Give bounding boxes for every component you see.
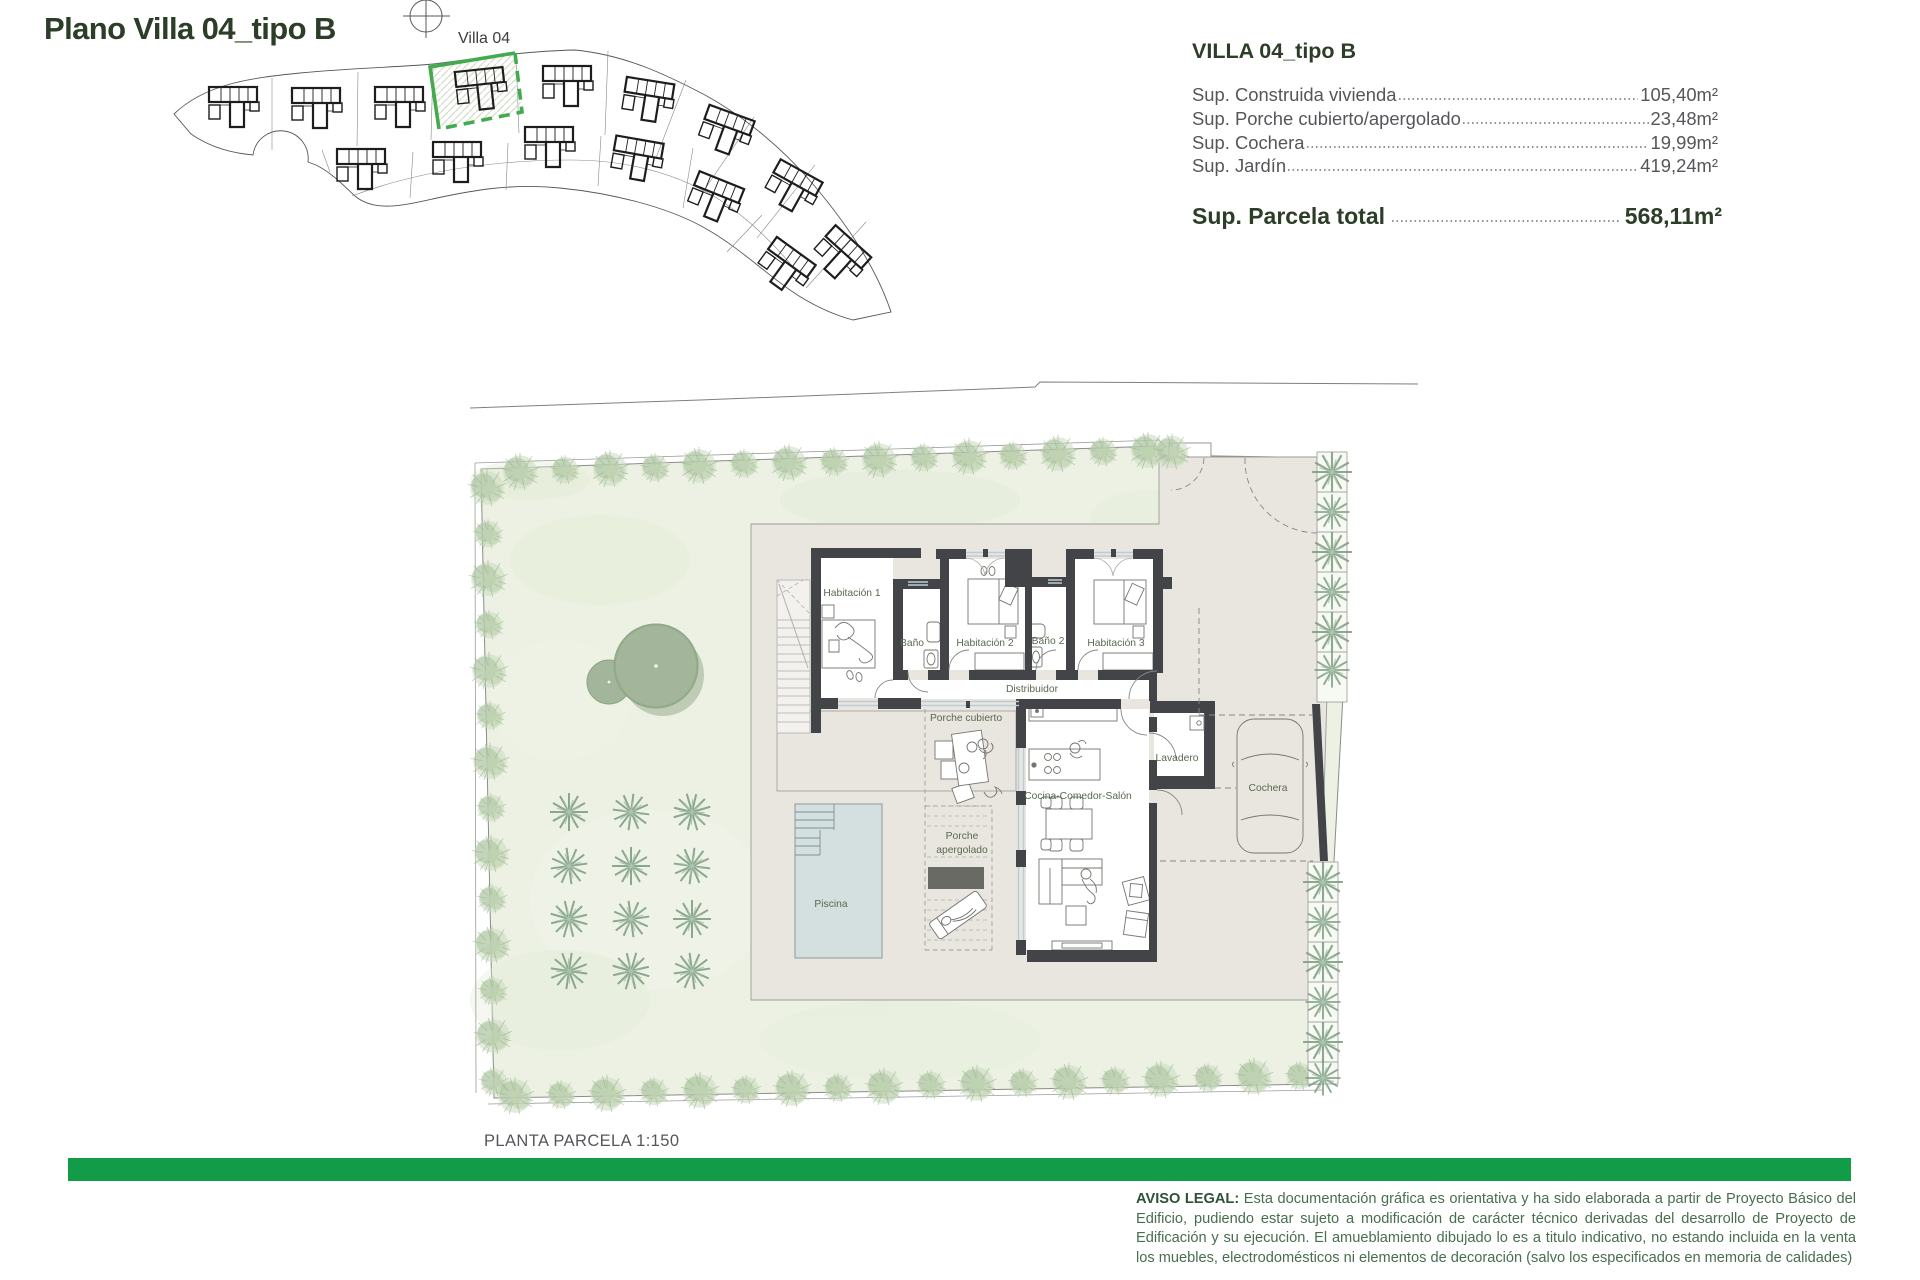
- svg-text:Sup. Construida vivienda: Sup. Construida vivienda: [1192, 84, 1397, 105]
- svg-text:Porche cubierto: Porche cubierto: [930, 713, 1002, 724]
- svg-text:Porche: Porche: [946, 831, 979, 842]
- svg-text:Sup. Jardín: Sup. Jardín: [1192, 155, 1286, 176]
- svg-text:568,11m²: 568,11m²: [1625, 203, 1723, 229]
- svg-text:VILLA 04_tipo B: VILLA 04_tipo B: [1192, 39, 1356, 63]
- svg-text:23,48m²: 23,48m²: [1651, 108, 1718, 129]
- svg-text:Piscina: Piscina: [814, 899, 847, 910]
- svg-text:Lavadero: Lavadero: [1156, 753, 1199, 764]
- svg-text:Cochera: Cochera: [1249, 783, 1288, 794]
- svg-text:Sup. Cochera: Sup. Cochera: [1192, 132, 1305, 153]
- svg-text:apergolado: apergolado: [936, 845, 988, 856]
- svg-text:Villa 04: Villa 04: [458, 30, 510, 47]
- svg-text:Cocina-Comedor-Salón: Cocina-Comedor-Salón: [1024, 791, 1132, 802]
- svg-text:Distribuidor: Distribuidor: [1006, 684, 1059, 695]
- svg-text:Habitación 1: Habitación 1: [823, 588, 881, 599]
- svg-text:Sup. Parcela total: Sup. Parcela total: [1192, 203, 1385, 229]
- svg-text:Baño: Baño: [900, 638, 924, 649]
- svg-text:105,40m²: 105,40m²: [1640, 84, 1718, 105]
- svg-text:419,24m²: 419,24m²: [1640, 155, 1718, 176]
- svg-text:Sup. Porche cubierto/apergolad: Sup. Porche cubierto/apergolado: [1192, 108, 1461, 129]
- svg-text:19,99m²: 19,99m²: [1651, 132, 1718, 153]
- svg-text:Habitación 3: Habitación 3: [1087, 638, 1145, 649]
- svg-text:Baño 2: Baño 2: [1032, 636, 1065, 647]
- svg-text:Habitación 2: Habitación 2: [956, 638, 1014, 649]
- svg-text:Plano Villa 04_tipo B: Plano Villa 04_tipo B: [44, 11, 336, 46]
- svg-text:PLANTA PARCELA 1:150: PLANTA PARCELA 1:150: [484, 1132, 679, 1150]
